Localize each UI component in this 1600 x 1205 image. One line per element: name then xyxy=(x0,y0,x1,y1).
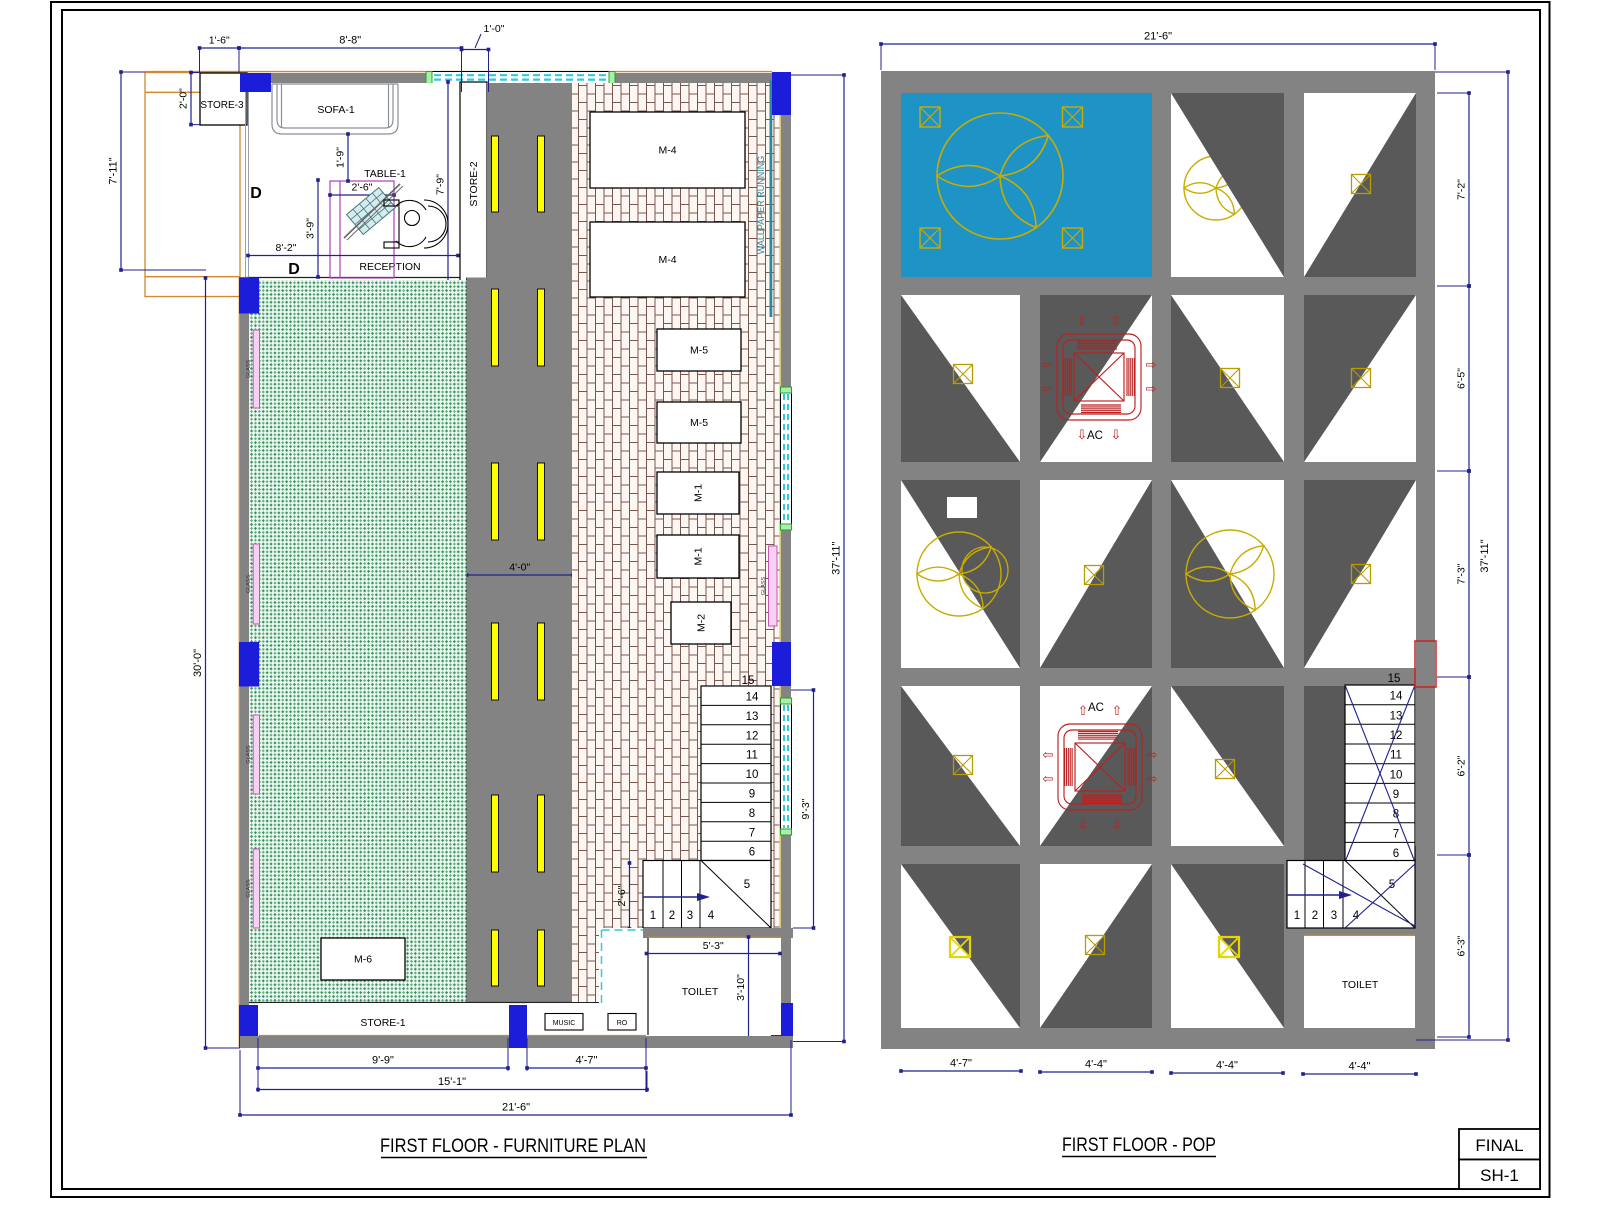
svg-text:5'-3": 5'-3" xyxy=(703,940,724,952)
svg-text:10: 10 xyxy=(1390,769,1403,781)
svg-text:37'-11": 37'-11" xyxy=(831,541,843,574)
svg-text:GLASS: GLASS xyxy=(246,574,252,593)
svg-text:TOILET: TOILET xyxy=(682,986,719,998)
svg-text:9'-3": 9'-3" xyxy=(800,798,812,819)
svg-text:4: 4 xyxy=(708,910,715,922)
svg-text:D: D xyxy=(288,261,300,278)
svg-text:SOFA-1: SOFA-1 xyxy=(317,104,355,116)
svg-text:7: 7 xyxy=(1393,828,1399,840)
svg-text:⇩: ⇩ xyxy=(1111,427,1122,442)
svg-text:3: 3 xyxy=(1331,910,1337,922)
svg-text:15'-1": 15'-1" xyxy=(438,1076,466,1088)
svg-text:⇧: ⇧ xyxy=(1111,313,1122,328)
svg-text:MUSIC: MUSIC xyxy=(553,1020,576,1027)
svg-text:⇨: ⇨ xyxy=(1147,771,1158,786)
svg-text:M-1: M-1 xyxy=(693,484,705,502)
svg-text:AC: AC xyxy=(1088,702,1104,714)
svg-text:4'-7": 4'-7" xyxy=(950,1058,972,1070)
svg-text:7'-2": 7'-2" xyxy=(1456,179,1468,200)
svg-text:13: 13 xyxy=(746,711,759,723)
svg-text:7'-11": 7'-11" xyxy=(108,157,120,184)
svg-text:4'-7": 4'-7" xyxy=(576,1055,598,1067)
svg-text:11: 11 xyxy=(746,750,758,762)
svg-text:2'-6": 2'-6" xyxy=(616,885,628,906)
svg-text:M-6: M-6 xyxy=(354,954,372,966)
svg-text:⇨: ⇨ xyxy=(1146,381,1157,396)
svg-text:5: 5 xyxy=(744,879,750,891)
svg-text:8: 8 xyxy=(749,808,755,820)
svg-text:⇦: ⇦ xyxy=(1043,747,1054,762)
svg-text:GLASS: GLASS xyxy=(246,879,252,898)
svg-text:FIRST FLOOR - POP: FIRST FLOOR - POP xyxy=(1062,1134,1216,1156)
svg-text:FIRST FLOOR - FURNITURE PLAN: FIRST FLOOR - FURNITURE PLAN xyxy=(380,1135,646,1157)
svg-text:2: 2 xyxy=(1312,910,1318,922)
svg-text:37'-11": 37'-11" xyxy=(1479,539,1491,572)
svg-text:M-5: M-5 xyxy=(690,345,708,357)
svg-text:1'-0": 1'-0" xyxy=(484,23,505,35)
svg-text:7: 7 xyxy=(749,827,755,839)
svg-text:RO: RO xyxy=(617,1020,628,1027)
svg-text:1: 1 xyxy=(650,910,656,922)
svg-text:3: 3 xyxy=(687,910,693,922)
svg-text:M-4: M-4 xyxy=(658,145,676,157)
svg-text:2'-6": 2'-6" xyxy=(352,182,373,194)
svg-text:4'-0": 4'-0" xyxy=(509,562,530,574)
svg-text:⇨: ⇨ xyxy=(1147,747,1158,762)
svg-text:14: 14 xyxy=(746,692,759,704)
svg-text:AC: AC xyxy=(1087,430,1103,442)
svg-text:WALLPAPER RUNNING: WALLPAPER RUNNING xyxy=(756,156,766,255)
svg-text:6'-2": 6'-2" xyxy=(1456,755,1468,776)
svg-text:2: 2 xyxy=(669,910,675,922)
svg-text:8'-8": 8'-8" xyxy=(339,35,361,47)
svg-text:9'-9": 9'-9" xyxy=(372,1055,394,1067)
svg-text:15: 15 xyxy=(1388,673,1401,685)
svg-text:GLASS: GLASS xyxy=(761,576,767,595)
svg-text:M-1: M-1 xyxy=(693,547,705,565)
svg-text:11: 11 xyxy=(1390,750,1402,762)
svg-text:GLASS: GLASS xyxy=(246,745,252,764)
svg-text:4'-4": 4'-4" xyxy=(1085,1059,1107,1071)
svg-text:8'-2": 8'-2" xyxy=(276,242,297,254)
svg-text:M-5: M-5 xyxy=(690,417,708,429)
svg-text:7'-3": 7'-3" xyxy=(1456,563,1468,584)
svg-text:⇧: ⇧ xyxy=(1077,313,1088,328)
svg-text:6'-3": 6'-3" xyxy=(1456,935,1468,956)
svg-text:6: 6 xyxy=(749,847,755,859)
svg-text:⇨: ⇨ xyxy=(1146,357,1157,372)
svg-text:M-4: M-4 xyxy=(658,254,676,266)
svg-text:4'-4": 4'-4" xyxy=(1349,1061,1371,1073)
svg-text:6: 6 xyxy=(1393,848,1399,860)
svg-text:7'-9": 7'-9" xyxy=(435,174,447,195)
svg-text:15: 15 xyxy=(742,675,755,687)
svg-text:14: 14 xyxy=(1390,691,1403,703)
svg-text:9: 9 xyxy=(749,789,755,801)
svg-text:⇧: ⇧ xyxy=(1078,703,1089,718)
svg-text:21'-6": 21'-6" xyxy=(1144,31,1172,43)
svg-text:STORE-1: STORE-1 xyxy=(360,1017,405,1029)
svg-text:⇩: ⇩ xyxy=(1112,817,1123,832)
svg-text:⇧: ⇧ xyxy=(1112,703,1123,718)
svg-text:TABLE-1: TABLE-1 xyxy=(364,168,406,180)
svg-text:STORE-3: STORE-3 xyxy=(200,100,244,111)
svg-text:TOILET: TOILET xyxy=(1342,979,1379,991)
svg-text:1: 1 xyxy=(1294,910,1300,922)
svg-text:⇦: ⇦ xyxy=(1042,381,1053,396)
svg-text:⇩: ⇩ xyxy=(1077,427,1088,442)
svg-text:9: 9 xyxy=(1393,789,1399,801)
svg-text:1'-9": 1'-9" xyxy=(335,147,347,168)
svg-text:⇩: ⇩ xyxy=(1078,817,1089,832)
svg-text:RECEPTION: RECEPTION xyxy=(359,261,420,273)
svg-text:3'-10": 3'-10" xyxy=(735,974,747,1001)
svg-text:FINAL: FINAL xyxy=(1475,1136,1523,1155)
svg-text:GLASS: GLASS xyxy=(246,359,252,378)
svg-text:⇦: ⇦ xyxy=(1043,771,1054,786)
svg-text:6'-5": 6'-5" xyxy=(1456,368,1468,389)
svg-text:⇦: ⇦ xyxy=(1042,357,1053,372)
svg-text:SH-1: SH-1 xyxy=(1480,1166,1519,1185)
svg-text:2'-0": 2'-0" xyxy=(178,88,190,109)
svg-text:10: 10 xyxy=(746,769,759,781)
svg-text:21'-6": 21'-6" xyxy=(502,1102,530,1114)
svg-text:4'-4": 4'-4" xyxy=(1216,1060,1238,1072)
svg-text:30'-0": 30'-0" xyxy=(192,649,204,677)
svg-text:D: D xyxy=(250,185,262,202)
svg-text:12: 12 xyxy=(746,730,759,742)
svg-text:3'-9": 3'-9" xyxy=(305,218,317,239)
svg-text:1'-6": 1'-6" xyxy=(209,35,230,47)
svg-text:STORE-2: STORE-2 xyxy=(468,161,480,206)
svg-text:M-2: M-2 xyxy=(696,614,708,632)
